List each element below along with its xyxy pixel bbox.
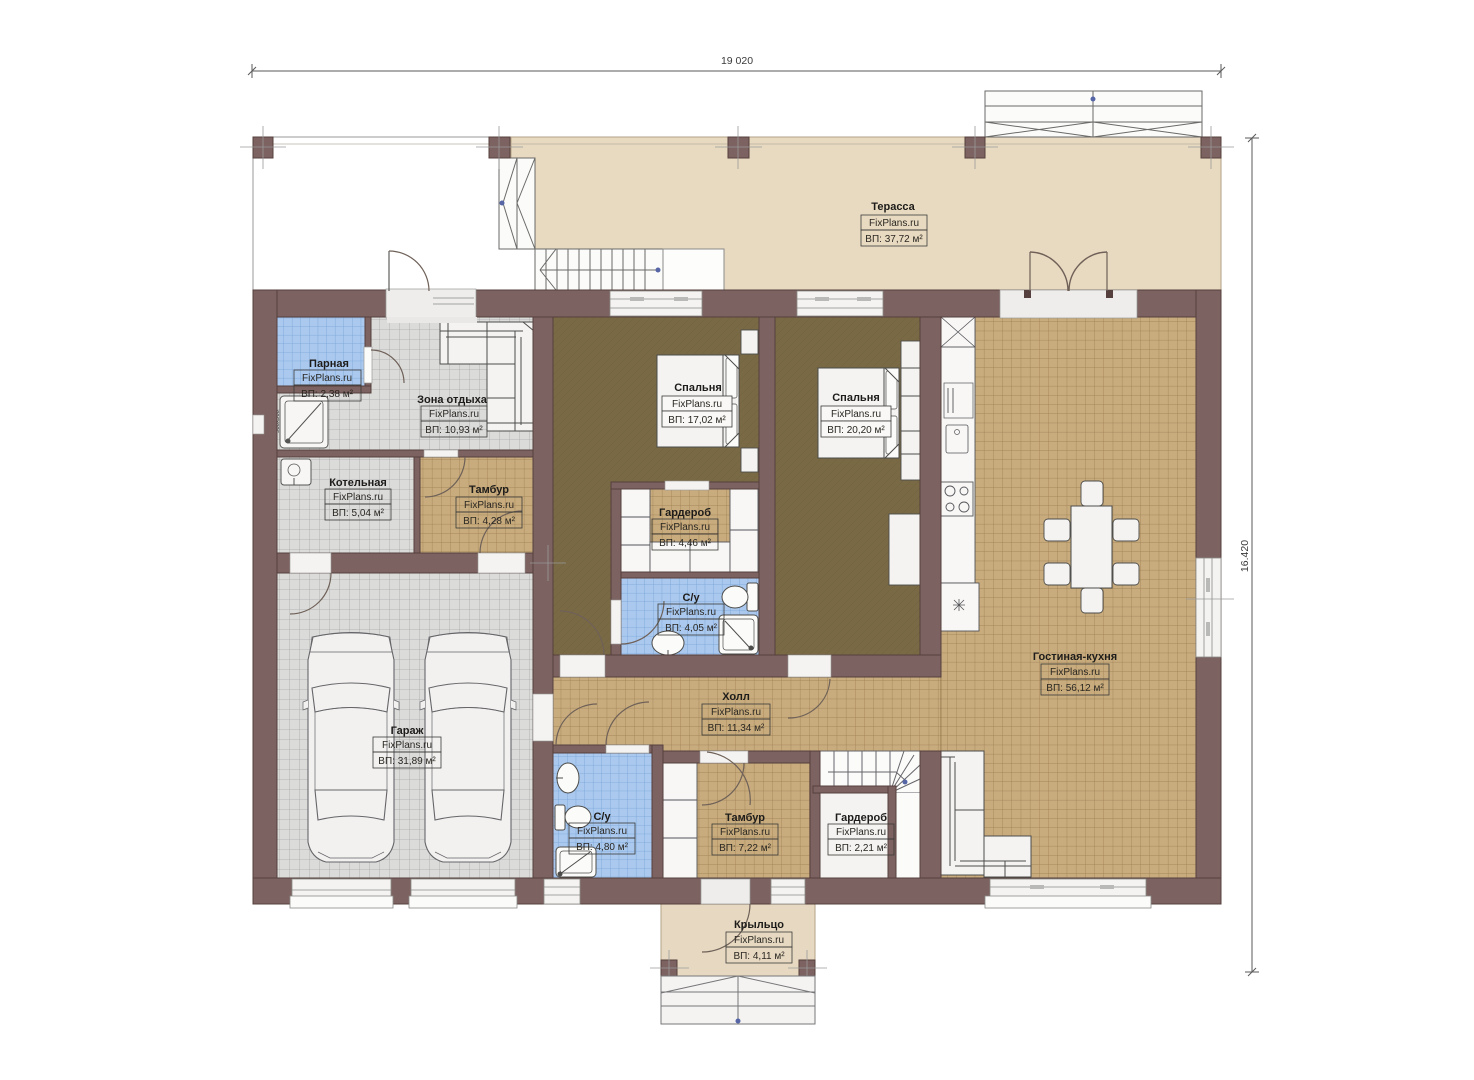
- svg-text:FixPlans.ru: FixPlans.ru: [734, 935, 784, 946]
- svg-text:ВП: 11,34 м²: ВП: 11,34 м²: [708, 723, 765, 734]
- svg-text:ВП: 4,46 м²: ВП: 4,46 м²: [659, 538, 712, 549]
- svg-text:FixPlans.ru: FixPlans.ru: [711, 707, 761, 718]
- svg-text:Спальня: Спальня: [832, 392, 880, 404]
- svg-text:FixPlans.ru: FixPlans.ru: [1050, 667, 1100, 678]
- svg-text:Гостиная-кухня: Гостиная-кухня: [1033, 651, 1117, 663]
- svg-text:Спальня: Спальня: [674, 382, 722, 394]
- svg-text:Терасса: Терасса: [871, 201, 915, 213]
- svg-text:С/у: С/у: [593, 811, 611, 823]
- svg-text:ВП: 4,28 м²: ВП: 4,28 м²: [463, 516, 516, 527]
- svg-text:ВП: 20,20 м²: ВП: 20,20 м²: [827, 425, 885, 436]
- svg-text:Парная: Парная: [309, 358, 349, 370]
- svg-text:ВП: 2,38 м²: ВП: 2,38 м²: [301, 389, 354, 400]
- svg-text:19 020: 19 020: [721, 55, 753, 67]
- svg-text:Тамбур: Тамбур: [469, 484, 509, 496]
- svg-text:Холл: Холл: [722, 691, 750, 703]
- svg-text:ВП: 4,05 м²: ВП: 4,05 м²: [665, 623, 718, 634]
- svg-text:Тамбур: Тамбур: [725, 812, 765, 824]
- svg-text:FixPlans.ru: FixPlans.ru: [429, 409, 479, 420]
- svg-text:ВП: 37,72 м²: ВП: 37,72 м²: [865, 234, 923, 245]
- svg-text:FixPlans.ru: FixPlans.ru: [382, 740, 432, 751]
- svg-text:FixPlans.ru: FixPlans.ru: [302, 373, 352, 384]
- svg-text:FixPlans.ru: FixPlans.ru: [836, 827, 886, 838]
- svg-text:Гараж: Гараж: [391, 725, 424, 737]
- svg-text:Котельная: Котельная: [329, 477, 387, 489]
- svg-text:ВП: 4,11 м²: ВП: 4,11 м²: [733, 951, 785, 962]
- svg-text:ВП: 2,21 м²: ВП: 2,21 м²: [835, 843, 888, 854]
- svg-text:FixPlans.ru: FixPlans.ru: [577, 826, 627, 837]
- svg-text:Гардероб: Гардероб: [659, 507, 711, 519]
- svg-text:ВП: 5,04 м²: ВП: 5,04 м²: [332, 508, 385, 519]
- svg-text:FixPlans.ru: FixPlans.ru: [720, 827, 770, 838]
- svg-text:16.420: 16.420: [1239, 540, 1251, 572]
- svg-text:ВП: 31,89 м²: ВП: 31,89 м²: [378, 756, 436, 767]
- svg-text:Крыльцо: Крыльцо: [734, 919, 784, 931]
- svg-text:FixPlans.ru: FixPlans.ru: [666, 607, 716, 618]
- svg-text:ВП: 7,22 м²: ВП: 7,22 м²: [719, 843, 772, 854]
- svg-text:ВП: 17,02 м²: ВП: 17,02 м²: [668, 415, 726, 426]
- svg-text:Гардероб: Гардероб: [835, 812, 887, 824]
- svg-text:FixPlans.ru: FixPlans.ru: [464, 500, 514, 511]
- svg-text:ВП: 10,93 м²: ВП: 10,93 м²: [425, 425, 483, 436]
- svg-text:FixPlans.ru: FixPlans.ru: [831, 409, 881, 420]
- svg-text:С/у: С/у: [682, 592, 700, 604]
- svg-text:FixPlans.ru: FixPlans.ru: [333, 492, 383, 503]
- svg-text:ВП: 56,12 м²: ВП: 56,12 м²: [1046, 683, 1104, 694]
- svg-text:FixPlans.ru: FixPlans.ru: [869, 218, 919, 229]
- svg-text:Зона отдыха: Зона отдыха: [417, 394, 488, 406]
- svg-text:ВП: 4,80 м²: ВП: 4,80 м²: [576, 842, 629, 853]
- svg-text:FixPlans.ru: FixPlans.ru: [672, 399, 722, 410]
- svg-text:FixPlans.ru: FixPlans.ru: [660, 522, 710, 533]
